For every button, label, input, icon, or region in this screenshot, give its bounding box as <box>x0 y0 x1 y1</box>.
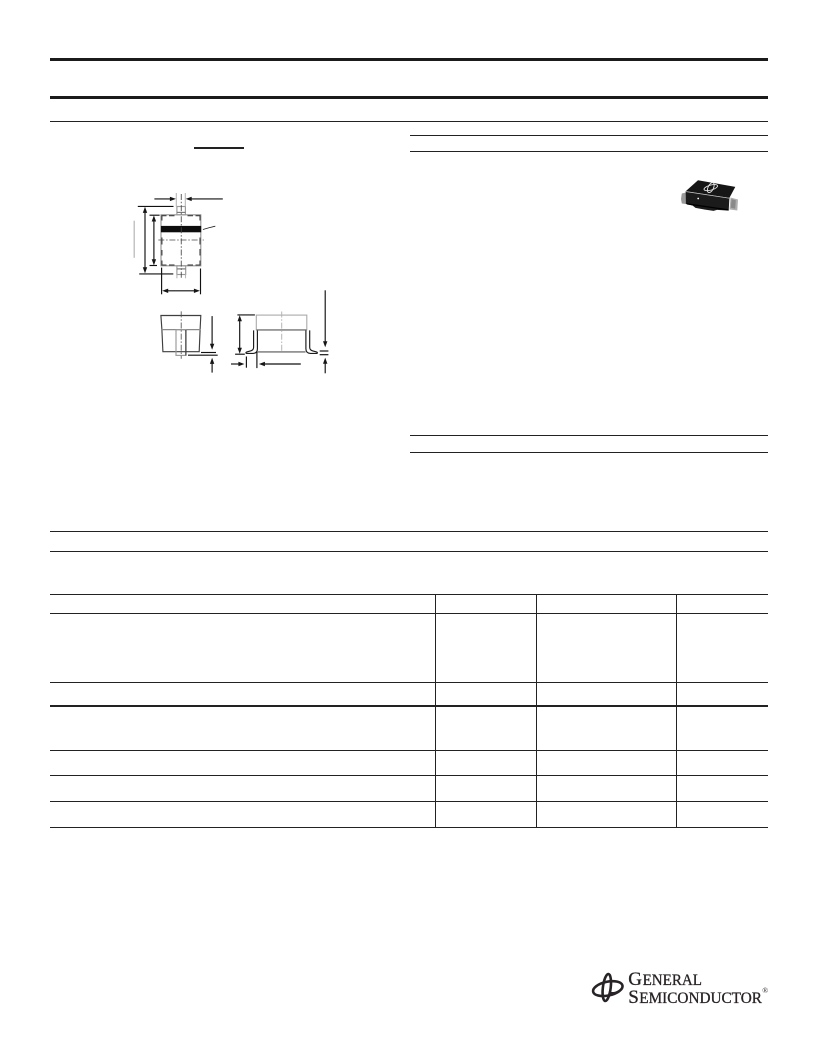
svg-text:®: ® <box>762 986 768 995</box>
svg-text:S: S <box>628 987 639 1008</box>
svg-text:EMICONDUCTOR: EMICONDUCTOR <box>639 990 762 1007</box>
svg-text:ENERAL: ENERAL <box>643 972 702 989</box>
